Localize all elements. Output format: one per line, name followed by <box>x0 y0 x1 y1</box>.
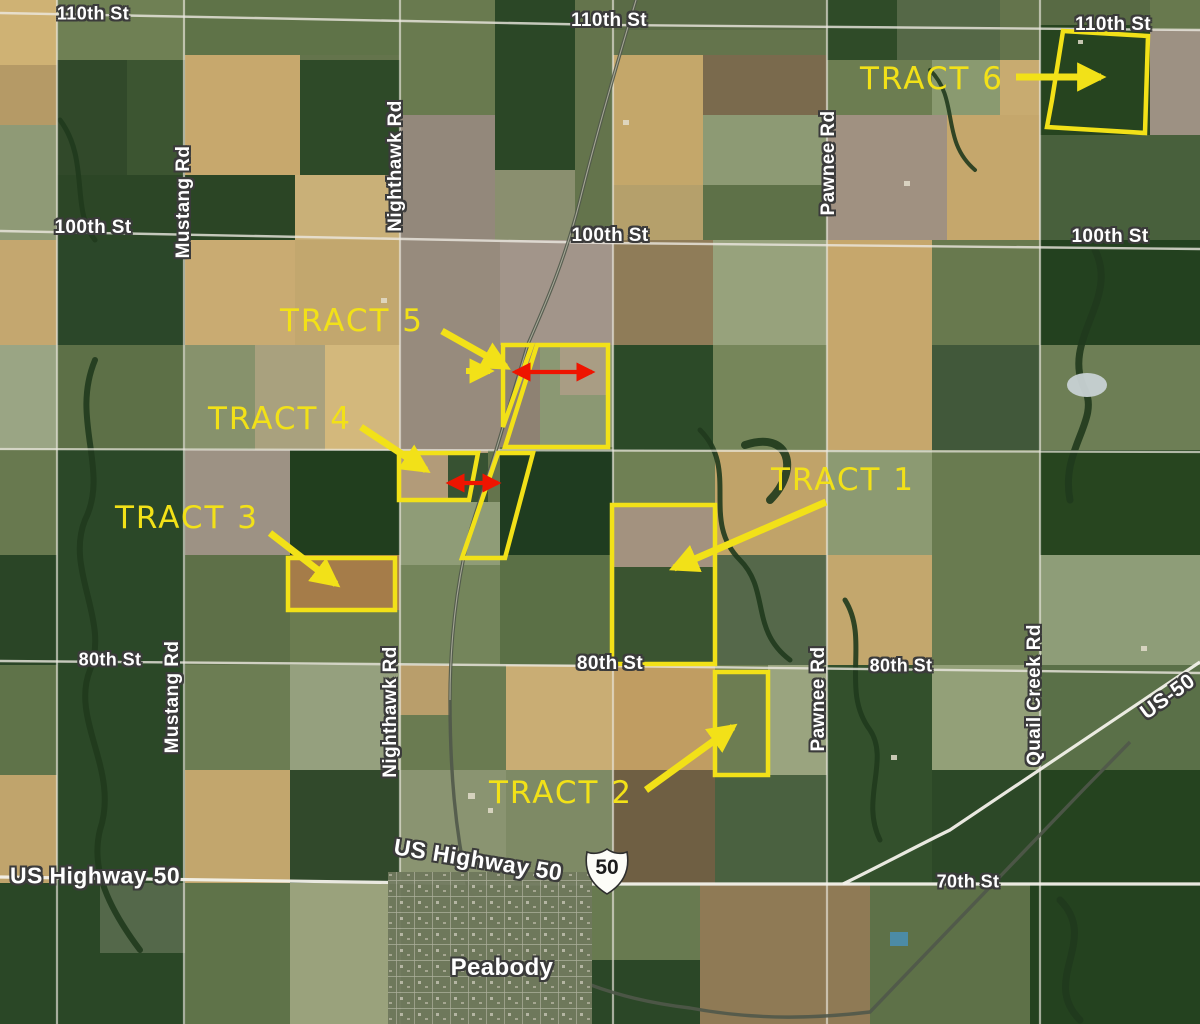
field-patchwork <box>0 0 1200 1024</box>
map-canvas[interactable] <box>0 0 1200 1024</box>
satellite-map[interactable]: 50 110th St110th St110th St100th St100th… <box>0 0 1200 1024</box>
town-grid-peabody <box>388 872 592 1024</box>
